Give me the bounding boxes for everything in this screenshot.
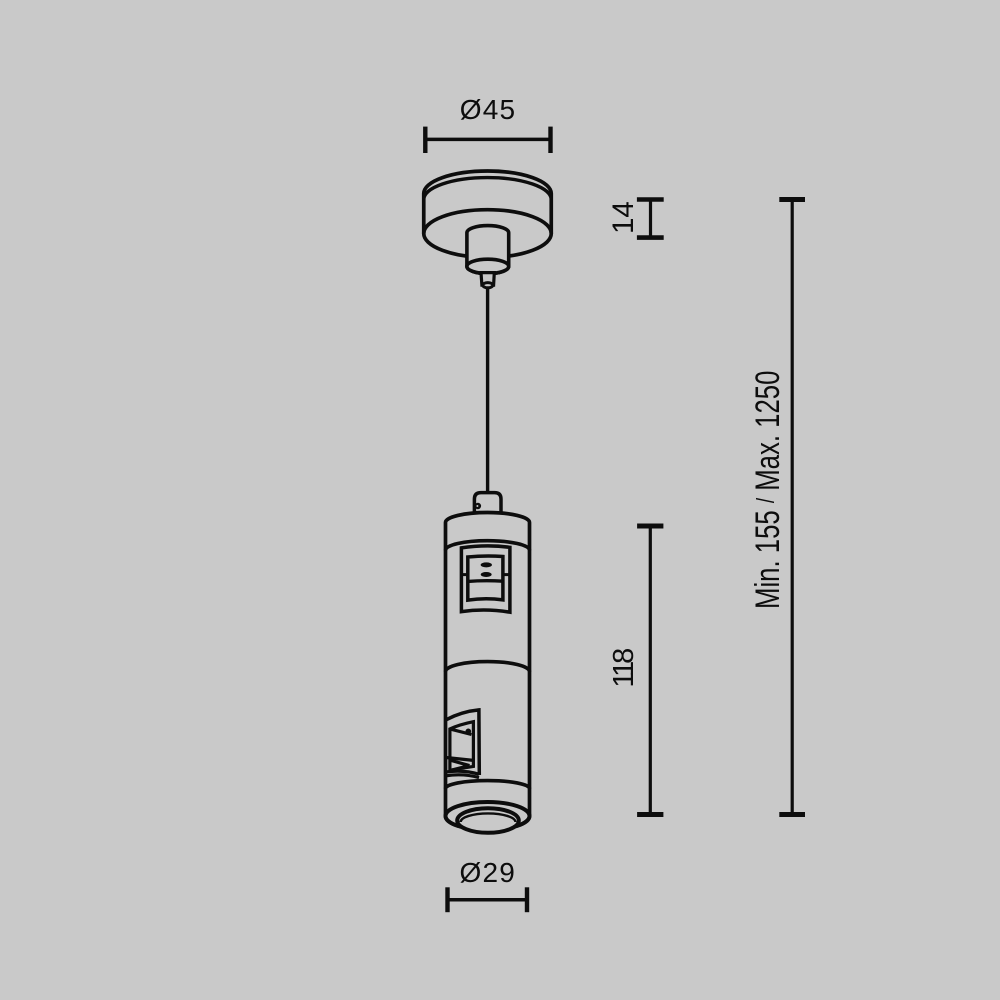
svg-text:Ø45: Ø45 [460,94,517,125]
svg-text:118: 118 [608,649,640,688]
svg-text:Min. 155 / Max. 1250: Min. 155 / Max. 1250 [750,371,787,609]
svg-text:14: 14 [607,201,640,234]
svg-text:Ø29: Ø29 [460,857,517,888]
